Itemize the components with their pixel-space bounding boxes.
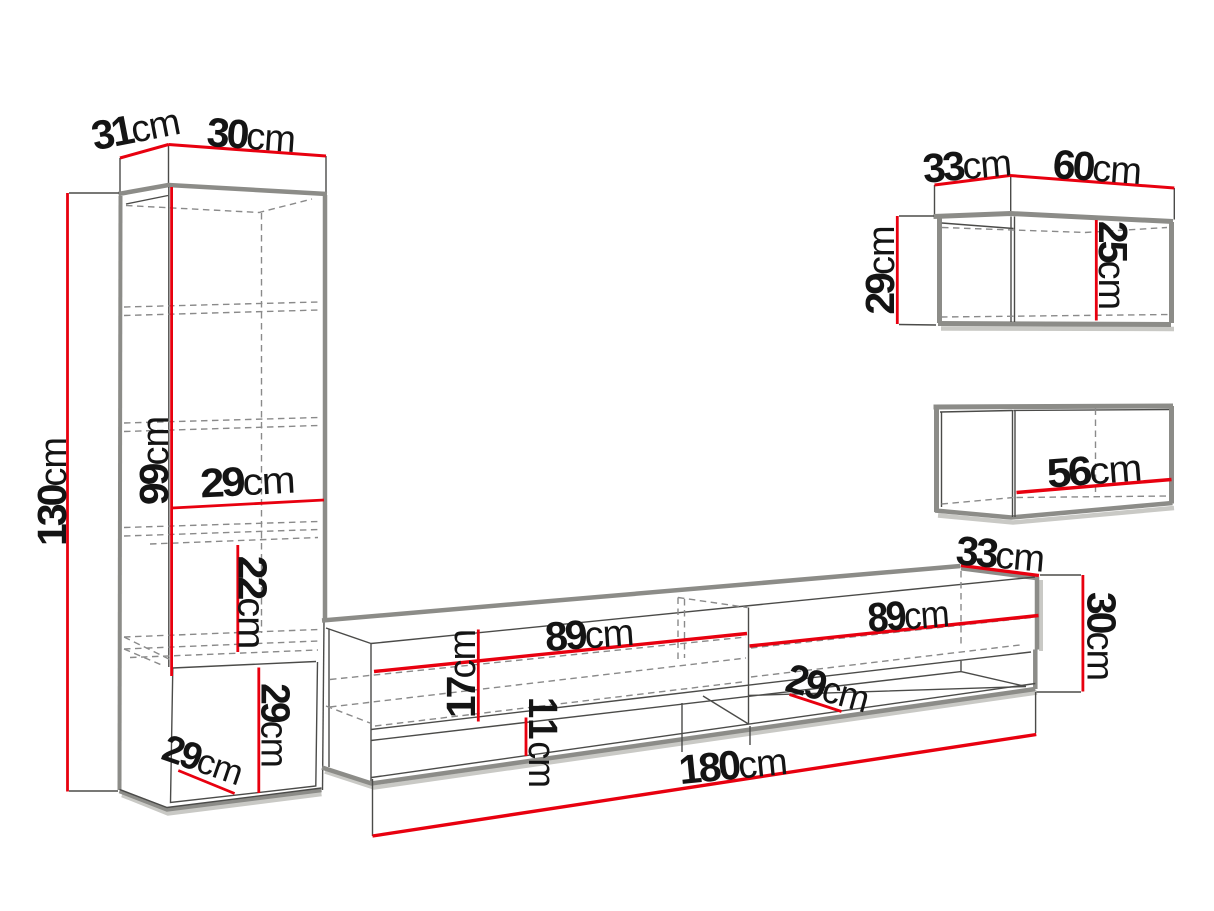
svg-text:29cm: 29cm	[199, 456, 296, 506]
svg-text:56cm: 56cm	[1045, 444, 1143, 497]
svg-text:25cm: 25cm	[1090, 221, 1136, 309]
svg-text:33cm: 33cm	[921, 138, 1013, 192]
svg-text:29cm: 29cm	[252, 683, 297, 767]
svg-text:11cm: 11cm	[520, 697, 565, 787]
svg-text:30cm: 30cm	[1079, 592, 1125, 680]
svg-text:29cm: 29cm	[857, 226, 903, 314]
svg-text:99cm: 99cm	[131, 417, 177, 505]
svg-text:89cm: 89cm	[866, 590, 950, 641]
svg-text:130cm: 130cm	[29, 438, 75, 546]
svg-text:89cm: 89cm	[543, 608, 634, 660]
svg-text:22cm: 22cm	[230, 556, 276, 649]
svg-text:17cm: 17cm	[438, 630, 484, 718]
